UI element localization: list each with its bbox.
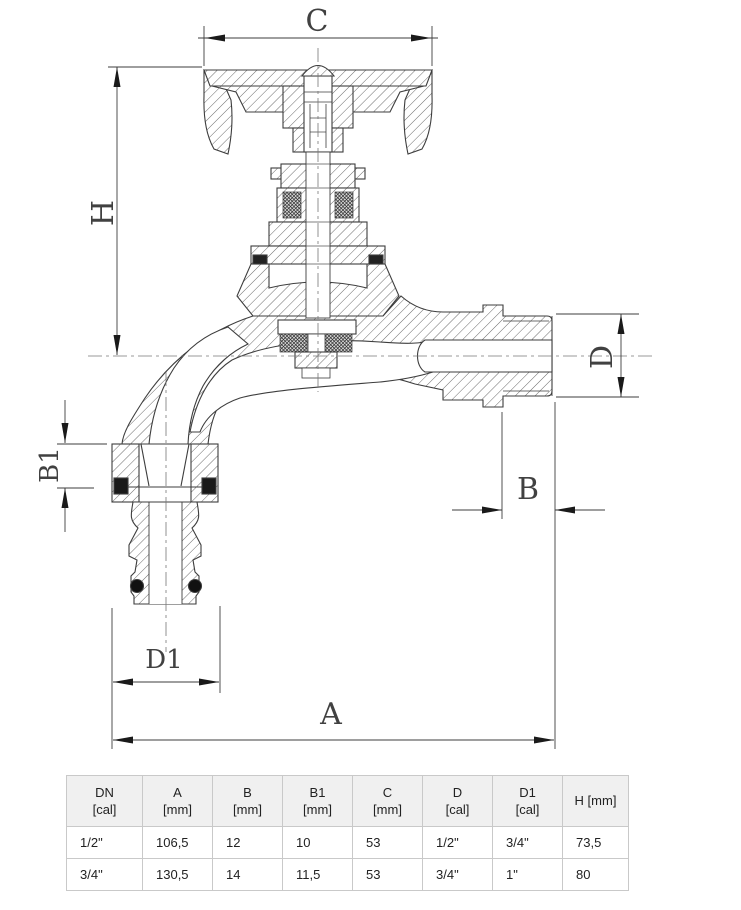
hose-barb <box>129 502 202 604</box>
cell-a: 106,5 <box>143 827 213 859</box>
cell-c: 53 <box>353 827 423 859</box>
dim-label-c: C <box>306 4 329 39</box>
col-header-c: C[mm] <box>353 776 423 827</box>
dimension-h <box>108 67 202 355</box>
bonnet-seal <box>253 255 267 264</box>
gland-packing <box>283 192 301 218</box>
col-header-a: A[mm] <box>143 776 213 827</box>
cell-dn: 3/4" <box>67 859 143 891</box>
dimension-a <box>113 737 554 744</box>
cell-d1: 1" <box>493 859 563 891</box>
col-header-h: H [mm] <box>563 776 629 827</box>
dim-label-h: H <box>86 200 121 226</box>
dim-label-d: D <box>585 345 620 369</box>
cell-b1: 11,5 <box>283 859 353 891</box>
dim-label-a: A <box>319 697 342 732</box>
col-header-d1: D1[cal] <box>493 776 563 827</box>
col-header-dn: DN[cal] <box>67 776 143 827</box>
valve-technical-drawing: C H D B B1 D1 A <box>0 0 741 765</box>
dim-label-d1: D1 <box>145 645 182 675</box>
dimensions-table: DN[cal] A[mm] B[mm] B1[mm] C[mm] D[cal] … <box>66 775 629 891</box>
dimension-b <box>452 402 605 749</box>
cell-b1: 10 <box>283 827 353 859</box>
table-row: 1/2" 106,5 12 10 53 1/2" 3/4" 73,5 <box>67 827 629 859</box>
dim-label-b: B <box>517 472 539 507</box>
cell-dn: 1/2" <box>67 827 143 859</box>
disc-nut <box>295 352 337 368</box>
handwheel-screw <box>304 76 332 152</box>
cell-b: 14 <box>213 859 283 891</box>
o-ring <box>131 580 144 593</box>
cell-d: 1/2" <box>423 827 493 859</box>
table-row: 3/4" 130,5 14 11,5 53 3/4" 1" 80 <box>67 859 629 891</box>
cell-b: 12 <box>213 827 283 859</box>
dim-label-b1: B1 <box>35 447 65 483</box>
table-header-row: DN[cal] A[mm] B[mm] B1[mm] C[mm] D[cal] … <box>67 776 629 827</box>
col-header-b1: B1[mm] <box>283 776 353 827</box>
cell-h: 73,5 <box>563 827 629 859</box>
cell-a: 130,5 <box>143 859 213 891</box>
cell-h: 80 <box>563 859 629 891</box>
outlet-union-nut <box>112 444 218 502</box>
col-header-d: D[cal] <box>423 776 493 827</box>
col-header-b: B[mm] <box>213 776 283 827</box>
disc-washer <box>280 334 307 352</box>
cell-d: 3/4" <box>423 859 493 891</box>
union-seal <box>114 478 128 494</box>
cell-d1: 3/4" <box>493 827 563 859</box>
cell-c: 53 <box>353 859 423 891</box>
